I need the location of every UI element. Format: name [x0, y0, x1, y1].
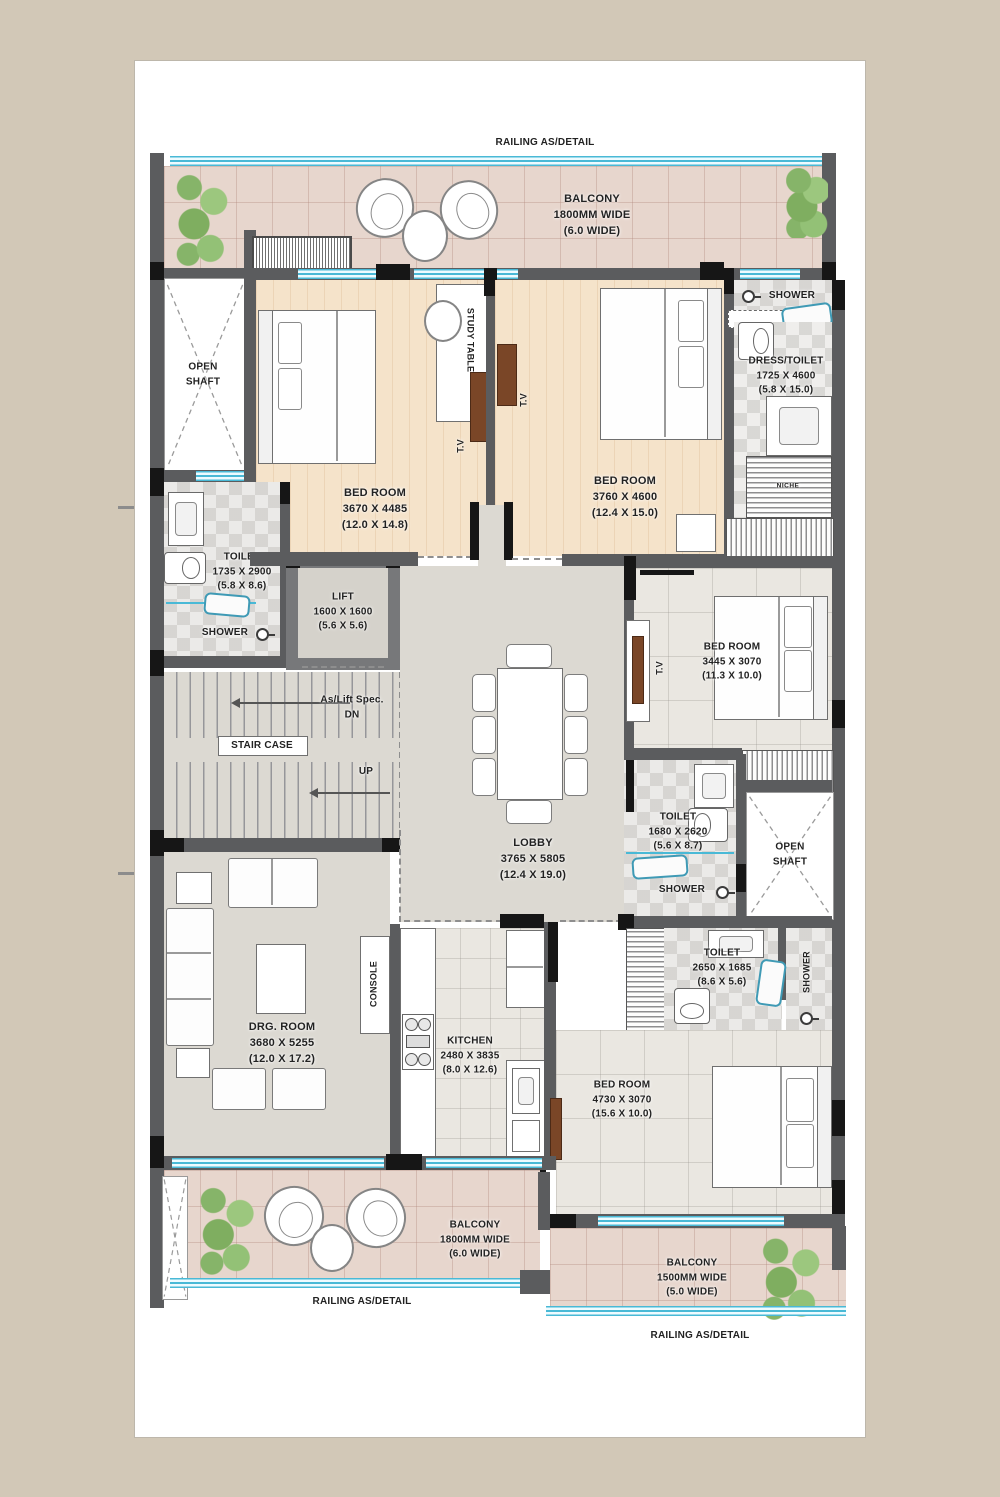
bed-headboard [813, 596, 828, 720]
door-leaf [626, 760, 634, 812]
wall-segment [832, 1100, 845, 1136]
door-leaf [470, 502, 479, 560]
wall-segment [624, 748, 742, 760]
open-shaft-left-label: OPEN SHAFT [186, 361, 220, 390]
side-table [176, 1048, 210, 1078]
window [426, 1158, 542, 1168]
niche-label: NICHE [777, 481, 800, 490]
dining-chair [472, 674, 496, 712]
drg-room-label: DRG. ROOM 3680 X 5255 (12.0 X 17.2) [249, 1020, 316, 1068]
stair-arrow [318, 792, 390, 794]
lobby-door-bay [478, 505, 506, 567]
bed-pillow [786, 1124, 814, 1168]
window [172, 1158, 384, 1168]
toilet-wc [674, 988, 710, 1024]
kitchen-unit [512, 1120, 540, 1152]
wall-segment [736, 864, 746, 892]
window [196, 471, 244, 481]
balcony-table [402, 210, 448, 262]
plant [172, 170, 230, 268]
tv-unit [632, 636, 644, 704]
bedroom3-label: BED ROOM 3445 X 3070 (11.3 X 10.0) [702, 640, 762, 684]
console-label: CONSOLE [367, 961, 380, 1007]
sofa-cushion-line [271, 859, 273, 905]
railing-note-top: RAILING AS/DETAIL [496, 136, 595, 151]
bed-blanket-line [778, 597, 780, 717]
shower-head-icon [716, 886, 729, 899]
wall-segment [724, 268, 734, 294]
bed-blanket-line [780, 1067, 782, 1185]
railing-note-bottom-left: RAILING AS/DETAIL [313, 1295, 412, 1310]
lobby-boundary-dash [404, 920, 502, 924]
wall-segment [624, 556, 832, 568]
tv-unit [550, 1098, 562, 1160]
sink [168, 492, 204, 546]
bed-pillow [678, 300, 704, 342]
dining-chair [564, 674, 588, 712]
dress-toilet-label: DRESS/TOILET 1725 X 4600 (5.8 X 15.0) [748, 354, 823, 398]
wall-segment [164, 838, 184, 852]
bedroom1-label: BED ROOM 3670 X 4485 (12.0 X 14.8) [342, 486, 408, 534]
shower-head-icon [742, 290, 755, 303]
wall-segment [832, 280, 845, 310]
balcony-top-railing [170, 156, 824, 166]
window [598, 1216, 784, 1226]
wall-segment [832, 1180, 845, 1214]
balcony-bottom-right-label: BALCONY 1500MM WIDE (5.0 WIDE) [657, 1256, 727, 1300]
wall-segment [280, 482, 290, 504]
stair-up-label: UP [359, 765, 373, 780]
dining-chair [472, 758, 496, 796]
burner-icon [418, 1053, 431, 1066]
plant [194, 1184, 258, 1276]
stove-grill [406, 1035, 430, 1048]
wall-segment [164, 838, 402, 852]
stair-spec-note: As/Lift Spec. DN [320, 694, 383, 723]
shower-top-right-label: SHOWER [769, 289, 815, 304]
armchair [272, 1068, 326, 1110]
bedroom4-label: BED ROOM 4730 X 3070 (15.6 X 10.0) [592, 1078, 652, 1122]
wall-segment [832, 700, 845, 728]
stair-arrow-head [231, 698, 240, 708]
shower-mid-label: SHOWER [659, 883, 705, 898]
wall-segment [250, 552, 418, 566]
bedroom1-bed [258, 310, 376, 464]
dining-table [497, 668, 563, 800]
bed-pillow [784, 650, 812, 692]
wall-segment [164, 656, 290, 668]
sofa-two-seat [228, 858, 318, 908]
bed-pillow [278, 322, 302, 364]
outer-wall-left [150, 280, 164, 1168]
toilet-mid-label: TOILET 1680 X 2620 (5.6 X 8.7) [649, 810, 708, 854]
sofa-cushion-line [167, 998, 211, 1000]
door-leaf [504, 502, 513, 560]
wall-segment [538, 1172, 550, 1230]
wall-segment [500, 914, 544, 928]
burner-icon [418, 1018, 431, 1031]
door-opening-dash [512, 558, 562, 562]
wardrobe-hatch [626, 928, 666, 1032]
window [298, 269, 376, 279]
stair-arrow-head [309, 788, 318, 798]
balcony-top-label: BALCONY 1800MM WIDE (6.0 WIDE) [554, 192, 631, 240]
kitchen-label: KITCHEN 2480 X 3835 (8.0 X 12.6) [441, 1034, 500, 1078]
shower-head-icon [256, 628, 269, 641]
paper-edge-tick [118, 872, 134, 875]
lift-door-dash [302, 666, 384, 670]
shower-left-label: SHOWER [202, 626, 248, 641]
lobby-label: LOBBY 3765 X 5805 (12.4 X 19.0) [500, 836, 566, 884]
window [414, 269, 518, 279]
stair-hatch [726, 518, 834, 560]
balcony-railing [170, 1278, 522, 1288]
bed-headboard [817, 1066, 832, 1188]
bed-pillow [678, 346, 704, 388]
wall-segment [832, 1226, 846, 1270]
sofa-cushion-line [167, 952, 211, 954]
wall-segment [700, 262, 724, 282]
dining-chair [564, 716, 588, 754]
wall-segment [520, 1270, 552, 1294]
study-chair [424, 300, 462, 342]
toilet-bottom-label: TOILET 2650 X 1685 (8.6 X 5.6) [693, 946, 752, 990]
bedroom4-bed [712, 1066, 832, 1188]
lift-label: LIFT 1600 X 1600 (5.6 X 5.6) [314, 590, 373, 634]
bed-pillow [786, 1078, 814, 1122]
balcony-table [310, 1224, 354, 1272]
coffee-table [256, 944, 306, 1014]
bedroom2-label: BED ROOM 3760 X 4600 (12.4 X 15.0) [592, 474, 658, 522]
study-table-label: STUDY TABLE [463, 308, 476, 372]
balcony-railing [546, 1306, 846, 1316]
railing-note-bottom-right: RAILING AS/DETAIL [651, 1329, 750, 1344]
tv-unit [497, 344, 517, 406]
floor-plan-canvas: RAILING AS/DETAIL BALCONY 1800MM WIDE (6… [0, 0, 1000, 1497]
tv-label-bedroom2: T.V [517, 393, 530, 407]
balcony-bottom-left-label: BALCONY 1800MM WIDE (6.0 WIDE) [440, 1218, 510, 1262]
bed-blanket-line [336, 311, 338, 461]
sink [694, 764, 734, 808]
wall-segment [624, 556, 636, 600]
kitchen-sink [512, 1068, 540, 1114]
paper-edge-tick [118, 506, 134, 509]
burner-icon [405, 1018, 418, 1031]
lobby-drg-boundary [399, 830, 403, 922]
door-opening-dash [418, 556, 472, 560]
door-leaf [640, 570, 694, 575]
wall-segment [150, 1136, 164, 1172]
wall-segment [150, 830, 164, 856]
bathtub [203, 592, 251, 618]
bed-pillow [278, 368, 302, 410]
armchair [212, 1068, 266, 1110]
bed-headboard [707, 288, 722, 440]
toilet-wc [164, 552, 206, 584]
lobby-boundary-dash [560, 920, 622, 924]
wall-segment [736, 754, 746, 922]
door-leaf [548, 922, 558, 982]
sofa-long [166, 908, 214, 1046]
wall-segment [548, 1214, 576, 1228]
bed-pillow [784, 606, 812, 648]
open-shaft-right-label: OPEN SHAFT [773, 841, 807, 870]
shower-bottom-right-label: SHOWER [800, 951, 813, 993]
dining-chair [472, 716, 496, 754]
bed-blanket-line [664, 289, 666, 437]
plant [786, 168, 828, 238]
window [740, 269, 800, 279]
fridge [506, 930, 546, 1008]
sink [766, 396, 832, 456]
tv-label-bedroom3: T.V [653, 661, 666, 675]
wall-segment [150, 153, 164, 265]
stove [402, 1014, 434, 1070]
fridge-line [507, 966, 543, 968]
wall-segment [624, 916, 832, 928]
dining-chair [506, 644, 552, 668]
burner-icon [405, 1053, 418, 1066]
side-table [176, 872, 212, 904]
shower-head-icon [800, 1012, 813, 1025]
wall-segment [150, 650, 164, 676]
stool [676, 514, 716, 552]
tv-label-bedroom1: T.V [454, 439, 467, 453]
dining-chair [506, 800, 552, 824]
bed-headboard [258, 310, 273, 464]
wall-segment [746, 780, 832, 792]
wall-segment [150, 468, 164, 496]
dining-chair [564, 758, 588, 796]
wall-segment [244, 278, 256, 476]
stair-case-label: STAIR CASE [231, 739, 293, 754]
bathtub [631, 854, 688, 880]
wall-segment [390, 924, 400, 1164]
